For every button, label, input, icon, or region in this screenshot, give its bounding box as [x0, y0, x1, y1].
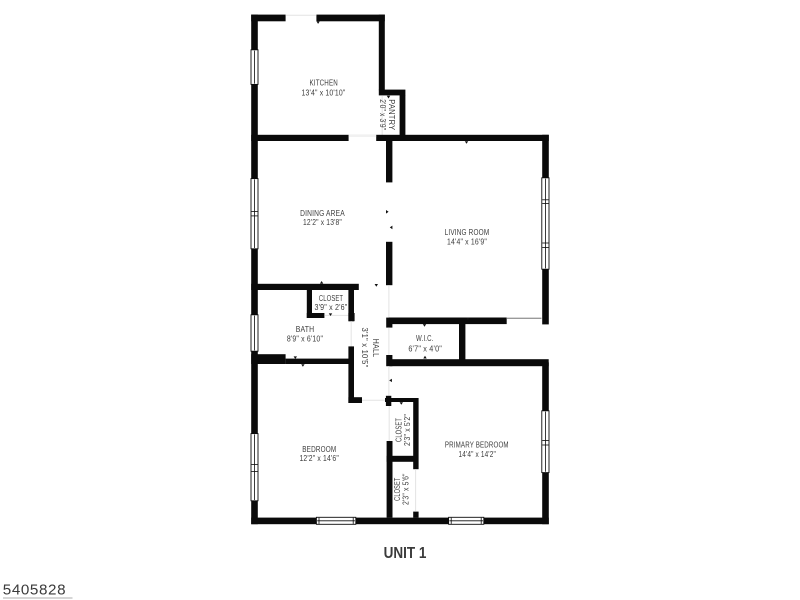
- svg-text:LIVING ROOM: LIVING ROOM: [445, 228, 490, 237]
- svg-text:DINING AREA: DINING AREA: [300, 209, 345, 218]
- svg-text:HALL: HALL: [371, 339, 380, 358]
- svg-text:W.I.C.: W.I.C.: [416, 334, 434, 343]
- svg-text:13'4" x 10'10": 13'4" x 10'10": [302, 88, 346, 97]
- svg-text:2'3" x 5'6": 2'3" x 5'6": [402, 473, 411, 505]
- svg-text:CLOSET: CLOSET: [319, 294, 343, 303]
- svg-text:BATH: BATH: [296, 325, 315, 334]
- svg-text:14'4" x 16'9": 14'4" x 16'9": [447, 237, 487, 246]
- svg-text:2'3" x 5'2": 2'3" x 5'2": [403, 414, 412, 446]
- svg-text:PANTRY: PANTRY: [387, 99, 396, 131]
- svg-text:6'7" x 4'0": 6'7" x 4'0": [408, 344, 442, 353]
- svg-text:8'9" x 6'10": 8'9" x 6'10": [287, 335, 323, 344]
- svg-text:UNIT 1: UNIT 1: [384, 545, 427, 562]
- svg-text:CLOSET: CLOSET: [394, 418, 403, 442]
- svg-text:12'2" x 14'6": 12'2" x 14'6": [299, 454, 339, 463]
- svg-text:3'1" x 10'5": 3'1" x 10'5": [360, 328, 369, 368]
- svg-text:5405828: 5405828: [3, 582, 66, 599]
- svg-text:14'4" x 14'2": 14'4" x 14'2": [459, 450, 496, 459]
- svg-text:KITCHEN: KITCHEN: [310, 78, 338, 87]
- svg-text:3'9" x 2'6": 3'9" x 2'6": [315, 303, 348, 312]
- svg-text:12'2" x 13'8": 12'2" x 13'8": [303, 218, 342, 227]
- svg-text:2'0" x 3'9": 2'0" x 3'9": [378, 99, 387, 130]
- svg-text:PRIMARY BEDROOM: PRIMARY BEDROOM: [445, 441, 509, 450]
- svg-text:BEDROOM: BEDROOM: [302, 445, 336, 454]
